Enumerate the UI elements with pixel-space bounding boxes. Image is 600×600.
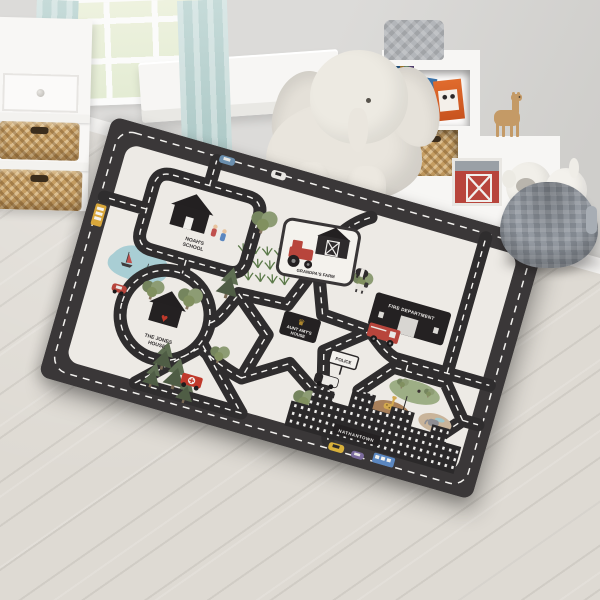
storage-cabinet bbox=[0, 17, 92, 211]
llama-figurine bbox=[488, 92, 524, 140]
knit-basket bbox=[500, 182, 598, 268]
basket-strap bbox=[586, 206, 597, 234]
wicker-basket bbox=[0, 121, 80, 161]
elephant-eye bbox=[366, 98, 371, 103]
basket-handle-icon bbox=[30, 175, 48, 182]
wicker-basket bbox=[0, 169, 83, 211]
basket-handle-icon bbox=[30, 127, 48, 134]
drawer-knob-icon bbox=[36, 89, 44, 97]
cabinet-drawer bbox=[2, 73, 79, 113]
barn-toy-bin bbox=[452, 158, 502, 206]
elephant-trunk bbox=[348, 108, 368, 152]
farm-sign: GRANDPA'S FARM bbox=[276, 218, 361, 286]
barn-door-icon bbox=[466, 174, 492, 202]
nursery-room-photo: NOAH'S SCHOOL GRANDPA'S FARM bbox=[0, 0, 600, 600]
